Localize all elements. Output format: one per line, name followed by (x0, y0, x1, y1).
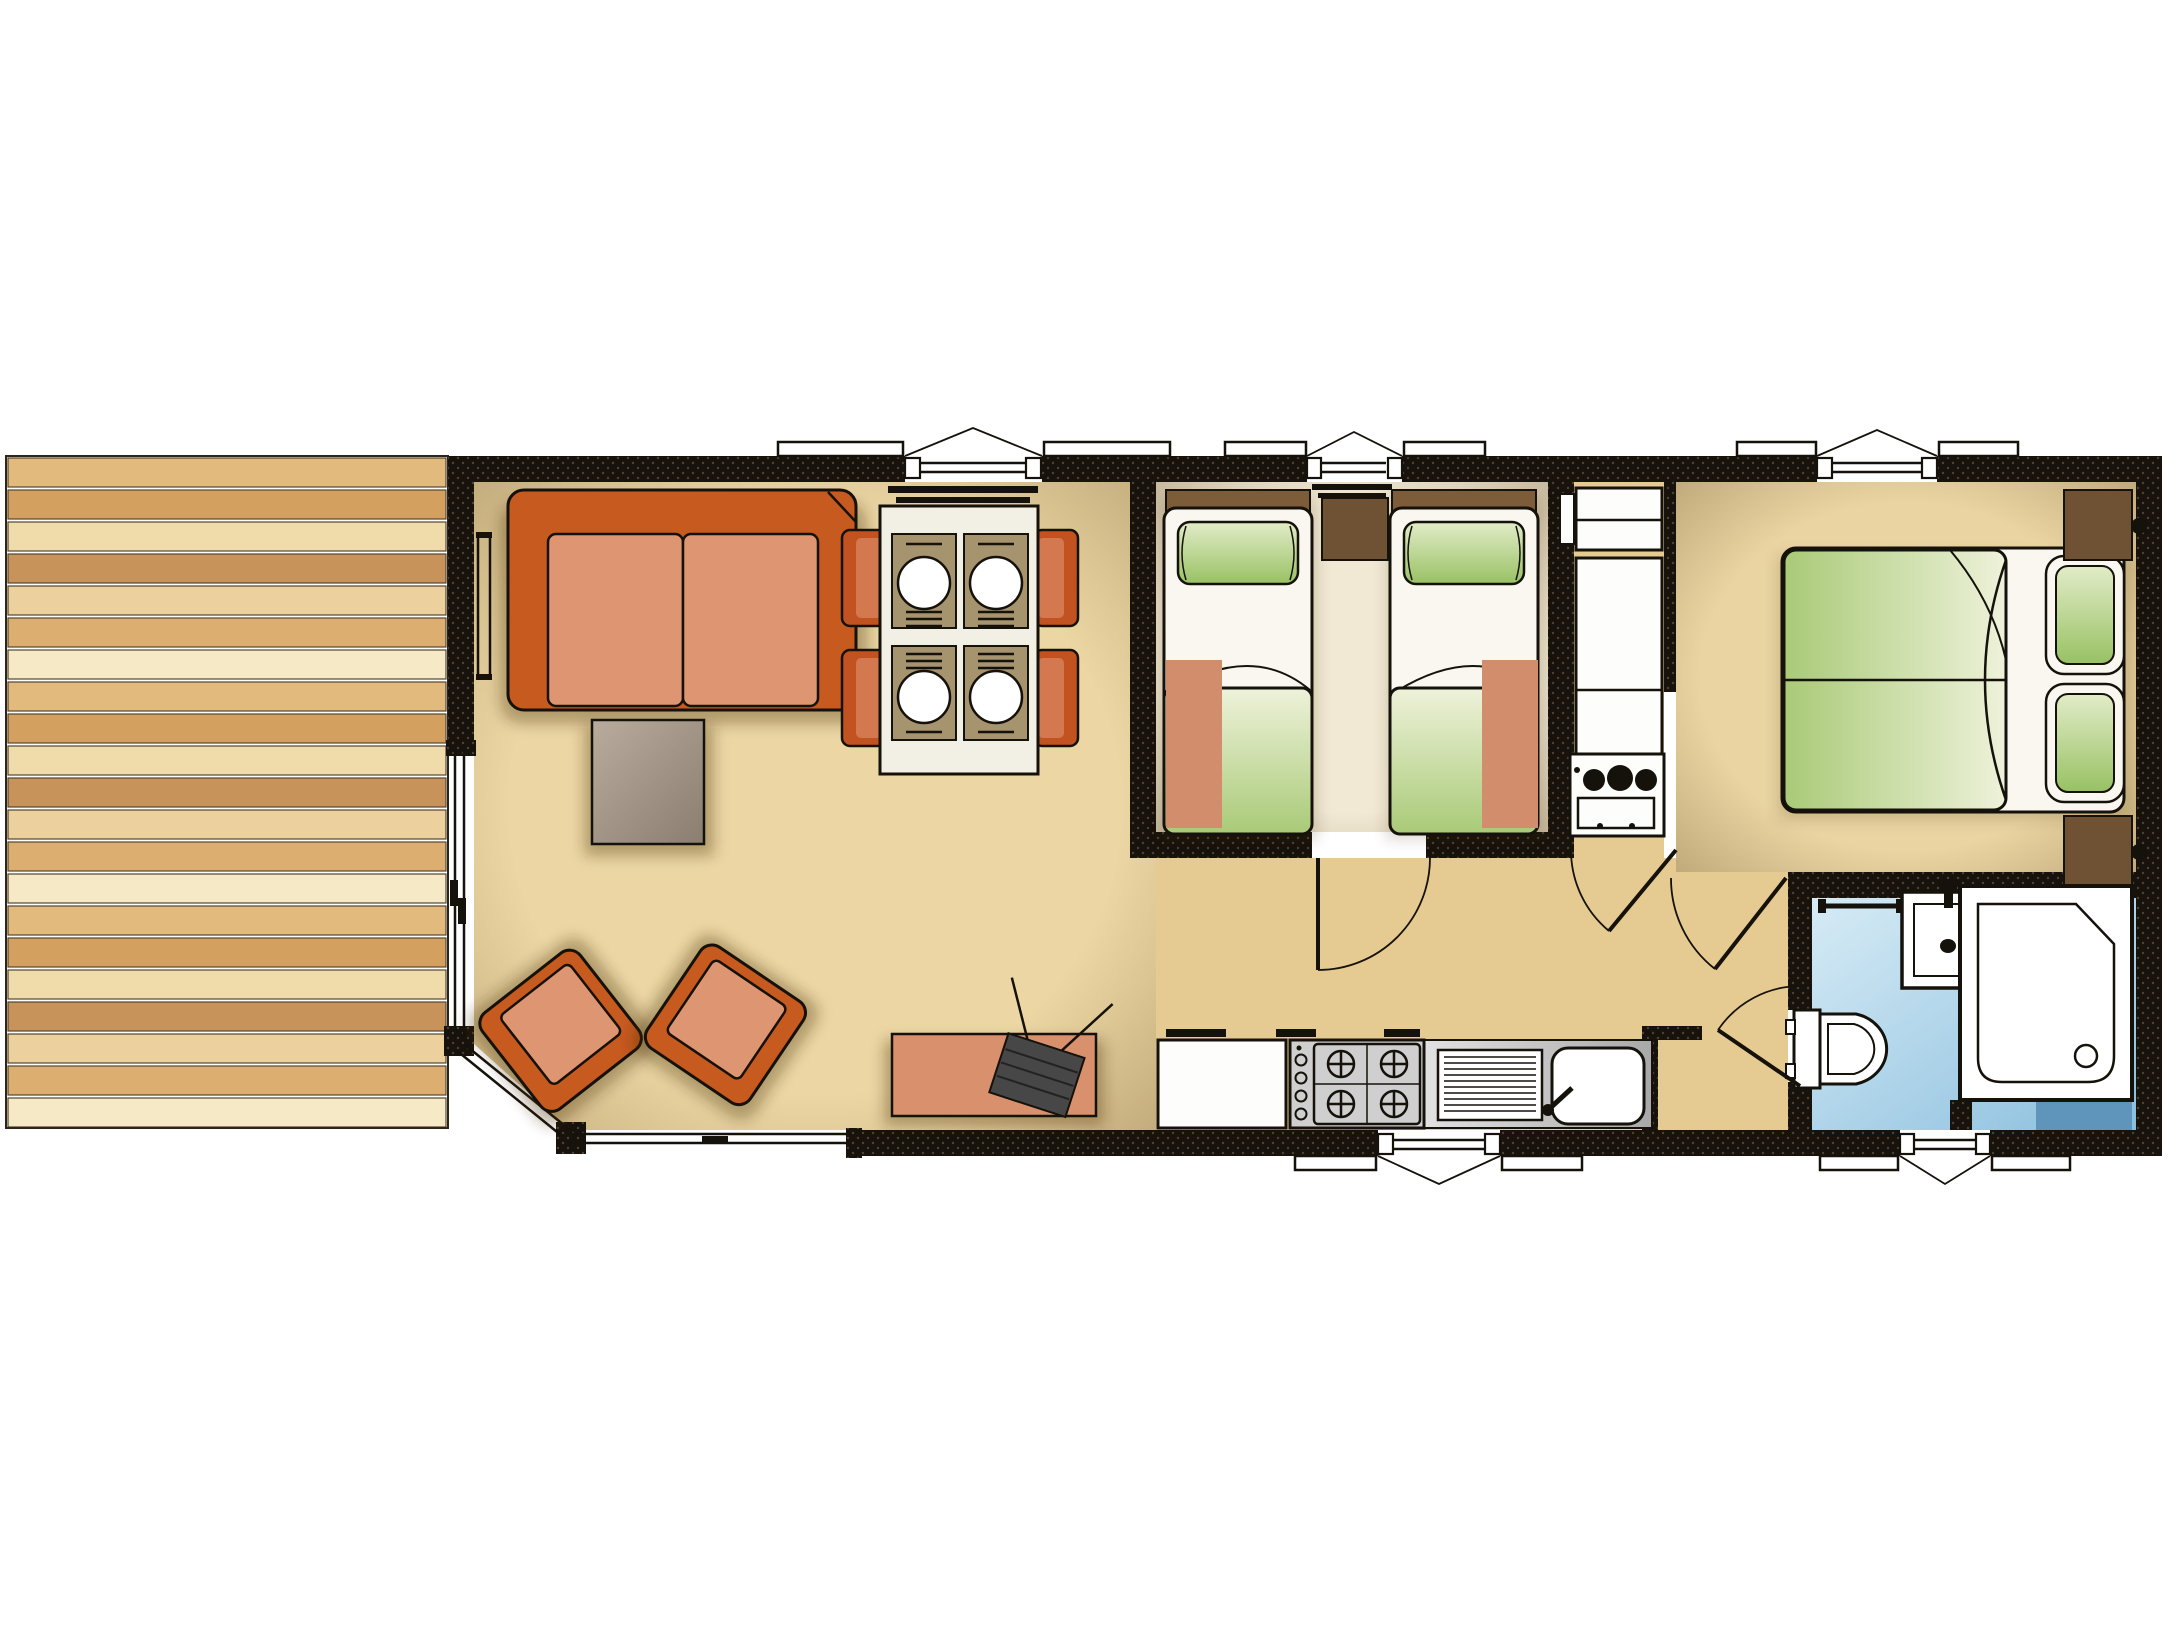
window-opener-icon (905, 428, 1042, 456)
post-chamfer-bottom (556, 1122, 586, 1154)
deck-plank (8, 714, 446, 743)
deck-plank (8, 842, 446, 871)
place-setting (964, 646, 1028, 740)
deck-planks (8, 458, 446, 1127)
plate (970, 557, 1022, 609)
drain-icon (1940, 939, 1956, 953)
radiator-cap (476, 532, 492, 538)
deck-plank (8, 458, 446, 487)
post-patio-door (446, 740, 476, 756)
deck-plank (8, 490, 446, 519)
coffee-table (584, 720, 714, 856)
gas-hob (1290, 1040, 1424, 1128)
plate (898, 557, 950, 609)
deck-plank (8, 618, 446, 647)
post-front-glazing (846, 1128, 862, 1158)
cistern (1794, 1010, 1820, 1088)
ottoman-bench-left (1166, 660, 1222, 828)
deck-plank (8, 554, 446, 583)
pillow (1178, 522, 1298, 584)
deck-plank (8, 906, 446, 935)
wall-living-twin (1130, 482, 1156, 858)
bedside-table (1322, 498, 1388, 560)
deck-plank (8, 1066, 446, 1095)
deck-plank (8, 1002, 446, 1031)
double-bed (1778, 548, 2132, 820)
floor-plan (0, 0, 2178, 1634)
deck-plank (8, 586, 446, 615)
wall-top-3 (1402, 456, 1817, 482)
wall-top-1 (448, 456, 905, 482)
deck-plank (8, 970, 446, 999)
deck-plank (8, 938, 446, 967)
wall-top-2 (1042, 456, 1307, 482)
wall-left (448, 456, 474, 746)
bath-mat (2036, 1100, 2132, 1130)
wall-bathroom-left-upper (1788, 898, 1812, 1010)
window-double-bedroom (1817, 430, 1937, 482)
deck-plank (8, 778, 446, 807)
deck-plank (8, 682, 446, 711)
deck-plank (8, 522, 446, 551)
place-setting (892, 534, 956, 628)
deck (6, 456, 448, 1128)
window-bathroom (1900, 1130, 1990, 1184)
wall-lamp-icon (2131, 518, 2147, 534)
drain-icon (2075, 1045, 2097, 1067)
tall-units (1560, 488, 1664, 836)
pillow (2046, 684, 2124, 802)
toilet (1786, 1010, 1887, 1088)
pillow (2046, 556, 2124, 674)
wall-right (2136, 456, 2162, 1156)
window-opener-icon (1378, 1156, 1500, 1184)
window-twin-bedroom (1307, 432, 1402, 498)
drainer (1438, 1050, 1542, 1120)
wall-lamp-icon (2131, 844, 2147, 860)
dining-chair (1034, 650, 1078, 746)
bedside-table (2064, 490, 2132, 560)
wall-top-4 (1937, 456, 2162, 482)
bedside-table (2064, 816, 2132, 886)
wall-bottom-1 (862, 1130, 1378, 1156)
tap-icon (1941, 879, 1955, 893)
wall-counter-return-nub (1642, 1026, 1702, 1040)
floor-plan-page (0, 0, 2178, 1634)
boiler-unit (1570, 754, 1664, 836)
base-unit (1158, 1040, 1286, 1128)
ottoman-bench-right (1482, 660, 1538, 828)
sofa (500, 490, 868, 724)
window-kitchen (1378, 1130, 1500, 1184)
dining-chair (1034, 530, 1078, 626)
deck-plank (8, 810, 446, 839)
deck-plank (8, 1098, 446, 1127)
bathtub (1960, 886, 2132, 1100)
window-opener-icon (1307, 432, 1402, 456)
patio-sliding-door (450, 748, 466, 1038)
place-setting (964, 534, 1028, 628)
post-bath-corner (1950, 1100, 1972, 1130)
tap-icon (1944, 892, 1953, 908)
larder-unit (1576, 558, 1662, 754)
plate (898, 671, 950, 723)
deck-plank (8, 874, 446, 903)
window-opener-icon (1817, 430, 1937, 456)
wall-bottom-2 (1500, 1130, 1900, 1156)
pillow (1404, 522, 1524, 584)
window-opener-icon (1900, 1156, 1990, 1184)
window-dining (888, 428, 1042, 503)
radiator-cap (476, 674, 492, 680)
deck-plank (8, 746, 446, 775)
place-setting (892, 646, 956, 740)
sink (1542, 1048, 1644, 1124)
wall-unit-divider (1664, 482, 1676, 692)
wall-cabinet-side (1560, 494, 1574, 544)
deck-plank (8, 1034, 446, 1063)
deck-plank (8, 650, 446, 679)
wall-bottom-3 (1990, 1130, 2162, 1156)
plate (970, 671, 1022, 723)
